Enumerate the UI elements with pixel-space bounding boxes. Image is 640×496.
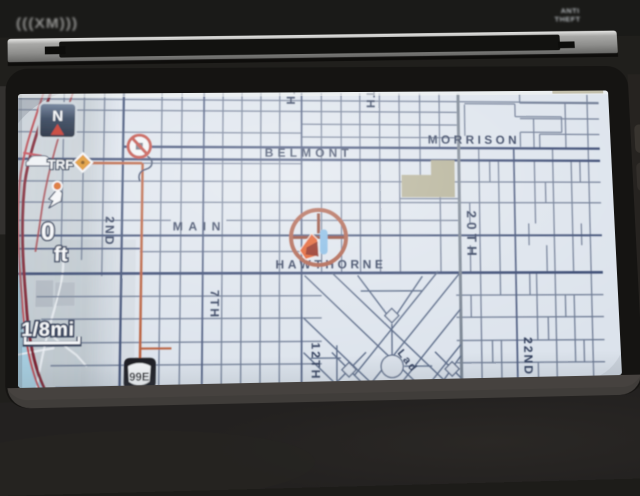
svg-text:(((XM))): (((XM))) [16,15,78,32]
svg-text:ANTI: ANTI [561,7,580,15]
svg-text:THEFT: THEFT [554,15,580,23]
